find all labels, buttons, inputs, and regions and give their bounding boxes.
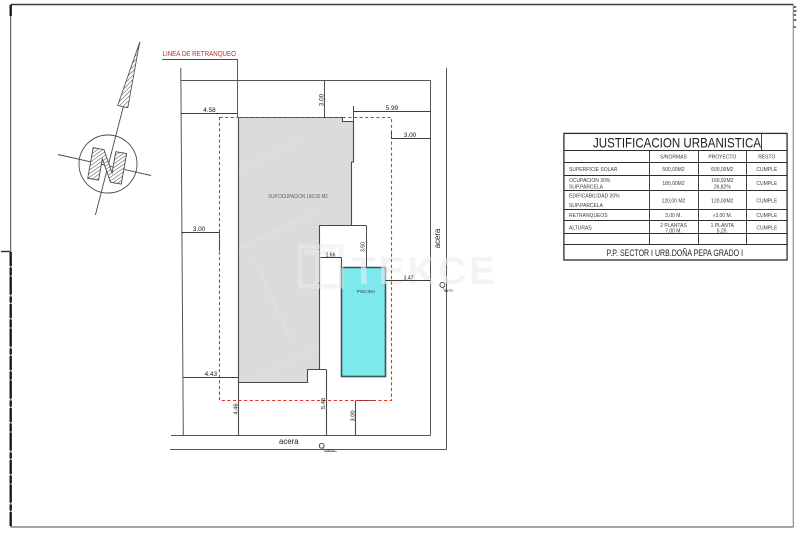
svg-text:S/NORMAS: S/NORMAS: [660, 155, 687, 161]
svg-text:26,82%: 26,82%: [714, 185, 732, 191]
svg-text:PISCINA: PISCINA: [357, 289, 376, 294]
svg-text:500,00M2: 500,00M2: [662, 167, 684, 173]
svg-text:P.P. SECTOR I URB.DOÑA PEPA: P.P. SECTOR I URB.DOÑA PEPA GRADO I: [607, 248, 744, 259]
svg-text:600,00M2: 600,00M2: [711, 167, 733, 173]
svg-text:180,00M2: 180,00M2: [662, 181, 684, 187]
svg-text:1.66: 1.66: [326, 252, 336, 258]
svg-text:JUSTIFICACION URBANISTICA: JUSTIFICACION URBANISTICA: [593, 135, 762, 150]
svg-text:SUP.PARCELA: SUP.PARCELA: [569, 185, 604, 191]
svg-text:3.47: 3.47: [404, 276, 414, 282]
svg-text:LINEA DE RETRANQUEO: LINEA DE RETRANQUEO: [163, 49, 237, 58]
svg-text:5.48: 5.48: [321, 398, 327, 409]
svg-text:OCUPACION 30%: OCUPACION 30%: [569, 178, 611, 184]
svg-text:5.99: 5.99: [386, 105, 399, 112]
svg-text:PROYECTO: PROYECTO: [708, 155, 736, 161]
svg-text:farola: farola: [445, 288, 453, 292]
svg-text:RETRANQUEOS: RETRANQUEOS: [569, 213, 608, 219]
svg-text:EDIFICABILIDAD 20%: EDIFICABILIDAD 20%: [569, 193, 620, 199]
svg-text:120,00 M2: 120,00 M2: [662, 198, 686, 204]
svg-text:4.43: 4.43: [205, 371, 218, 378]
svg-text:3.00: 3.00: [193, 226, 206, 233]
svg-text:120,00M2: 120,00M2: [711, 198, 733, 204]
svg-text:5,25.: 5,25.: [717, 228, 728, 234]
svg-text:Farola: Farola: [326, 448, 335, 452]
svg-text:4.46: 4.46: [234, 403, 240, 414]
svg-text:3,00 M.: 3,00 M.: [665, 213, 682, 219]
svg-text:RESTO: RESTO: [758, 155, 775, 161]
svg-text:3.00: 3.00: [350, 410, 356, 421]
svg-text:SUPERFICIE SOLAR: SUPERFICIE SOLAR: [569, 167, 618, 173]
svg-text:TEKCE: TEKCE: [352, 250, 498, 293]
svg-text:CUMPLE: CUMPLE: [756, 167, 778, 173]
svg-text:3.50: 3.50: [360, 242, 366, 252]
svg-text:CUMPLE: CUMPLE: [756, 181, 778, 187]
svg-text:3.00: 3.00: [319, 93, 326, 106]
svg-text:CUMPLE: CUMPLE: [756, 225, 778, 231]
svg-text:SUP.PARCELA: SUP.PARCELA: [569, 203, 604, 209]
svg-text:ALTURAS: ALTURAS: [569, 225, 592, 231]
svg-text:7,00 M.: 7,00 M.: [665, 228, 682, 234]
svg-text:4.58: 4.58: [203, 107, 216, 114]
svg-text:CUMPLE: CUMPLE: [756, 213, 778, 219]
svg-text:»3,00 M.: »3,00 M.: [713, 213, 732, 219]
svg-text:SUP.OCUPACION 160,92 M2: SUP.OCUPACION 160,92 M2: [268, 194, 328, 200]
svg-text:CUMPLE: CUMPLE: [756, 198, 778, 204]
svg-text:acera: acera: [433, 228, 442, 248]
svg-text:160,92M2: 160,92M2: [711, 178, 733, 184]
svg-text:acera: acera: [279, 437, 299, 446]
svg-text:3.00: 3.00: [404, 132, 417, 139]
